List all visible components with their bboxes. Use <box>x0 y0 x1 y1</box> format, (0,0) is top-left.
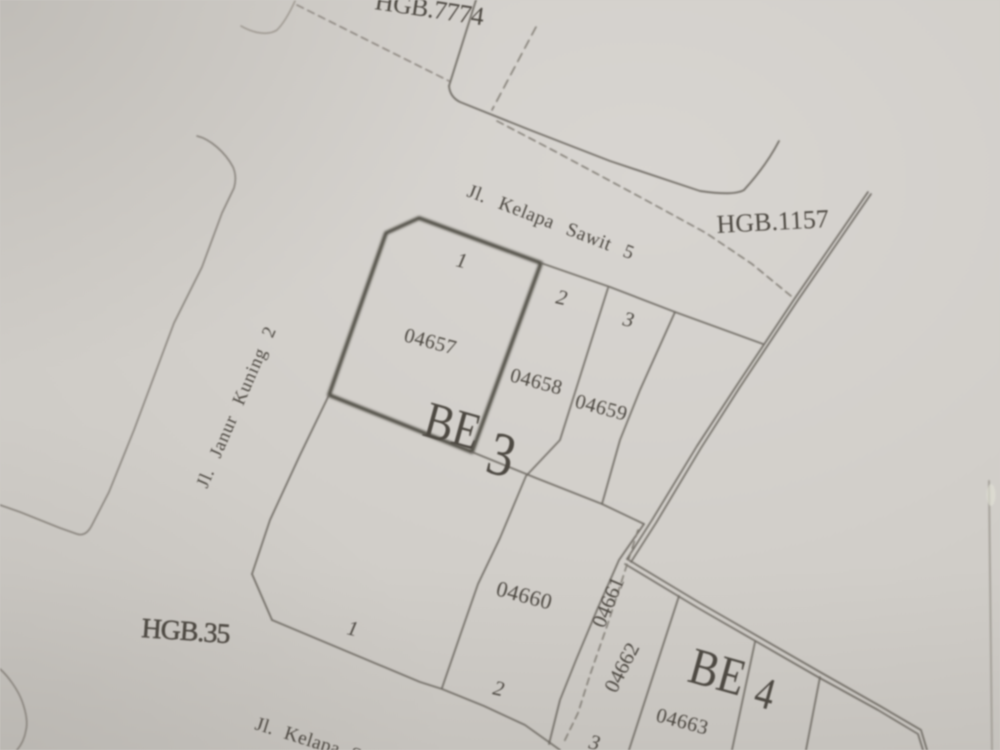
svg-text:HGB.35: HGB.35 <box>141 613 231 650</box>
svg-text:HGB.1157: HGB.1157 <box>716 204 830 239</box>
